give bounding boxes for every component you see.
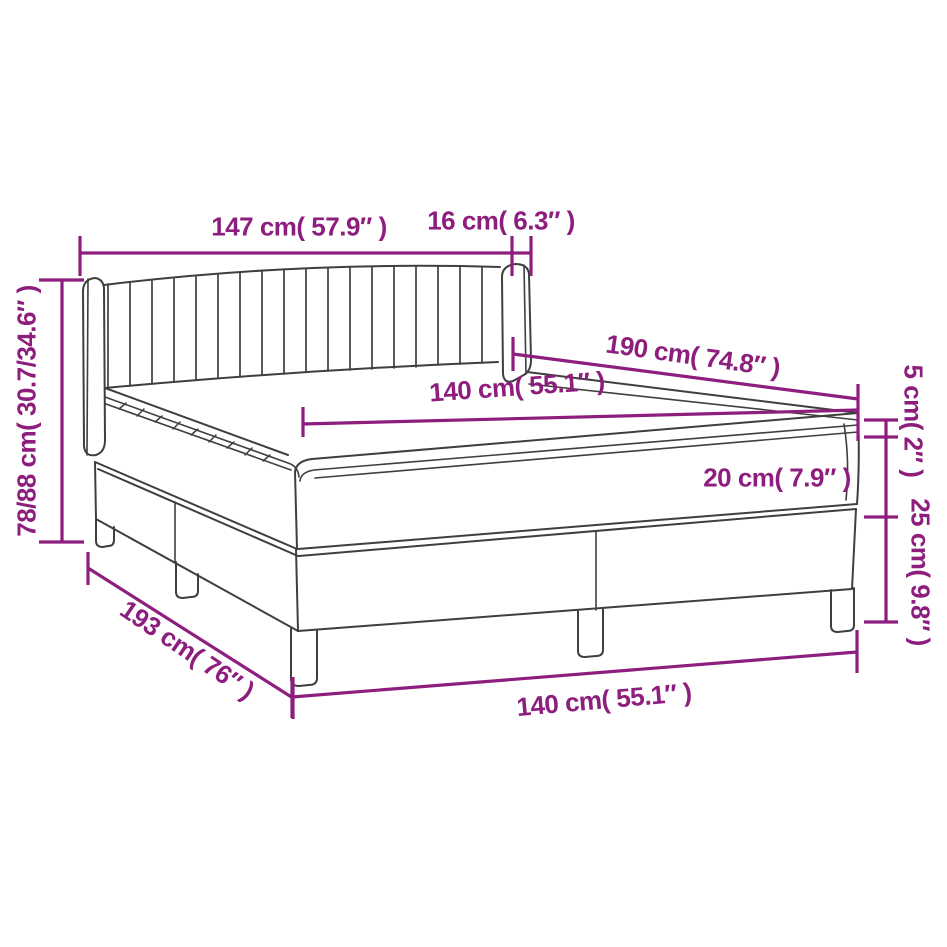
- bed-headboard: [83, 264, 531, 455]
- headboard-width-label: 147 cm( 57.9″ ): [211, 212, 387, 243]
- dimension-diagram: 147 cm( 57.9″ ) 16 cm( 6.3″ ) 78/88 cm( …: [0, 0, 947, 947]
- total-height-label: 78/88 cm( 30.7/34.6″ ): [12, 285, 43, 537]
- dim-line-total-height: [39, 280, 84, 542]
- topper-height-label: 5 cm( 2″ ): [898, 365, 929, 478]
- base-height-label: 25 cm( 9.8″ ): [905, 498, 936, 646]
- mattress-height-label: 20 cm( 7.9″ ): [703, 463, 851, 494]
- dim-line-right-heights: [864, 420, 898, 622]
- wing-depth-label: 16 cm( 6.3″ ): [427, 206, 575, 237]
